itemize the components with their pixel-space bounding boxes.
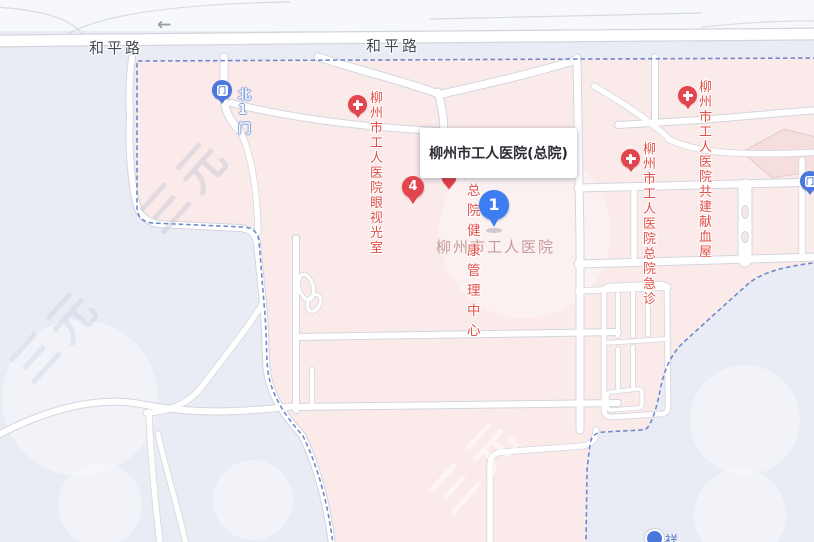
road-direction-arrow-icon: ←	[157, 15, 171, 35]
emergency-label: 柳州市工人 医院总院急诊	[643, 142, 656, 307]
cross-icon	[353, 100, 363, 110]
road-label-heping-left: 和平路	[89, 37, 143, 58]
map-canvas[interactable]	[0, 0, 814, 542]
gate-marker-icon: 门	[212, 80, 232, 100]
hospital-marker-icon	[348, 95, 367, 114]
gate-door-icon: 门	[805, 176, 814, 187]
result-marker-1[interactable]: 1	[479, 190, 509, 220]
cross-icon	[683, 91, 693, 101]
road-label-heping-center: 和平路	[366, 35, 420, 56]
gate-north1-label: 北1门	[238, 84, 251, 137]
info-popup[interactable]: 柳州市工人医院(总院)	[420, 128, 577, 178]
gate-marker-icon: 门	[800, 171, 814, 191]
hospital-marker-icon	[621, 149, 640, 168]
map-viewport: 三元 三元 三元 和平路 ← 和平路 柳州市工人医院 门 北1门 柳州市工人 医…	[0, 0, 814, 542]
cross-icon	[626, 154, 636, 164]
area-label-hospital[interactable]: 柳州市工人医院	[436, 236, 555, 257]
residence-marker-icon	[645, 529, 664, 542]
blood-house-label: 柳州市工人医院 共建献血屋	[699, 80, 712, 260]
popup-title: 柳州市工人医院(总院)	[429, 143, 568, 163]
result-marker-4[interactable]: 4	[402, 176, 424, 198]
hospital-marker-icon	[678, 86, 697, 105]
eye-clinic-label: 柳州市工人 医院眼视光室	[370, 91, 383, 256]
gate-door-icon: 门	[217, 85, 228, 96]
residence-label: 祥和雅苑	[665, 530, 678, 542]
